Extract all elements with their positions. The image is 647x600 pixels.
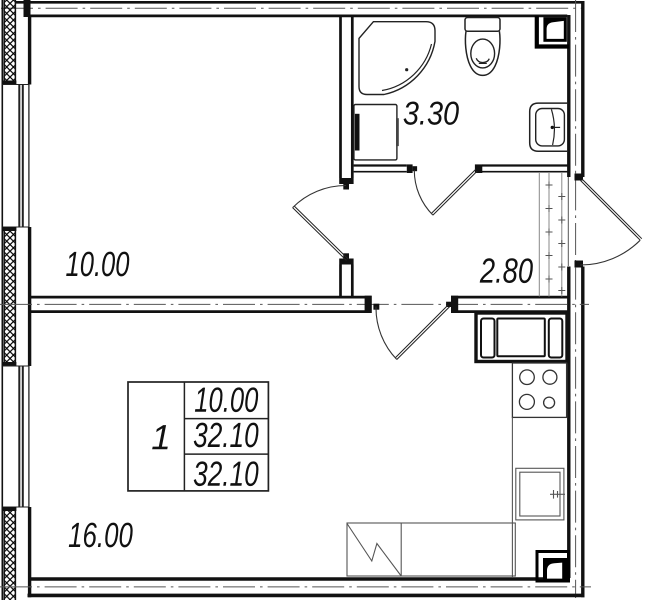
svg-text:2.80: 2.80 <box>479 252 533 291</box>
svg-text:16.00: 16.00 <box>68 516 133 555</box>
svg-text:32.10: 32.10 <box>193 455 259 494</box>
svg-text:32.10: 32.10 <box>193 416 259 455</box>
svg-text:1: 1 <box>151 418 170 457</box>
svg-text:10.00: 10.00 <box>65 245 129 284</box>
svg-text:10.00: 10.00 <box>194 381 258 420</box>
svg-text:3.30: 3.30 <box>403 94 460 131</box>
